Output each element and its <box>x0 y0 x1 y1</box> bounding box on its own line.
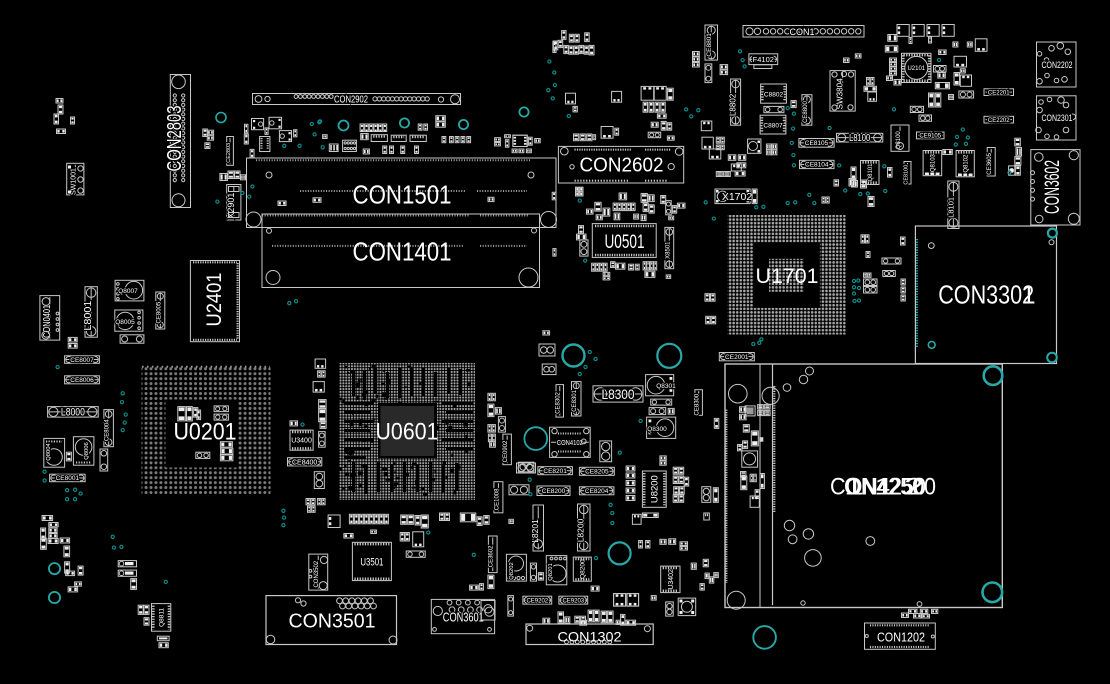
svg-text:C8802: C8802 <box>764 92 784 99</box>
svg-text:Q8007: Q8007 <box>118 288 138 295</box>
svg-text:U3402: U3402 <box>668 569 675 590</box>
svg-text:U0601: U0601 <box>376 419 439 446</box>
svg-text:Q8006: Q8006 <box>84 442 90 459</box>
svg-text:CON2602: CON2602 <box>580 155 664 177</box>
svg-text:L8101: L8101 <box>946 197 955 218</box>
svg-text:CE8100: CE8100 <box>904 165 910 185</box>
svg-text:CE0902: CE0902 <box>503 440 509 462</box>
svg-text:CON1202: CON1202 <box>877 630 925 645</box>
svg-text:CON0401: CON0401 <box>42 305 53 338</box>
svg-text:CE9203: CE9203 <box>562 598 584 604</box>
svg-text:CE8800: CE8800 <box>803 101 809 123</box>
svg-text:L8300: L8300 <box>602 386 635 402</box>
svg-text:1 1 2: 1 1 2 <box>844 474 924 501</box>
svg-text:Q8301: Q8301 <box>656 383 676 390</box>
svg-text:U1701: U1701 <box>756 264 819 288</box>
svg-text:CON1: CON1 <box>790 27 815 38</box>
svg-text:Q8202: Q8202 <box>509 562 515 579</box>
svg-text:Q8004: Q8004 <box>46 443 52 461</box>
svg-text:CON1401: CON1401 <box>353 237 452 267</box>
svg-text:CE3602: CE3602 <box>489 545 495 567</box>
svg-text:1: 1 <box>1021 282 1035 310</box>
svg-text:CON3601: CON3601 <box>443 609 484 624</box>
svg-text:SW1001: SW1001 <box>70 168 77 195</box>
svg-text:CE8201: CE8201 <box>543 468 567 475</box>
svg-text:U2101: U2101 <box>907 66 925 72</box>
svg-text:L8001: L8001 <box>82 300 94 330</box>
svg-text:CON1501: CON1501 <box>353 180 452 210</box>
svg-text:CE8302: CE8302 <box>556 391 562 413</box>
svg-text:CE2202: CE2202 <box>988 118 1010 124</box>
svg-text:CON2902: CON2902 <box>334 94 368 106</box>
svg-text:CE2001: CE2001 <box>725 354 749 361</box>
svg-text:Q8103: Q8103 <box>931 153 937 172</box>
svg-text:Q8005: Q8005 <box>115 319 135 326</box>
svg-text:U2401: U2401 <box>203 273 226 327</box>
svg-text:CON3501: CON3501 <box>289 611 376 633</box>
svg-text:X1702: X1702 <box>722 191 753 203</box>
svg-text:CON2803: CON2803 <box>164 106 186 172</box>
svg-text:L8100: L8100 <box>849 133 870 144</box>
svg-text:C8807: C8807 <box>763 123 783 130</box>
svg-text:CE8006: CE8006 <box>70 377 94 384</box>
svg-text:CON3602: CON3602 <box>1041 160 1064 214</box>
svg-text:Q8101: Q8101 <box>868 163 874 182</box>
svg-text:L8802: L8802 <box>729 93 738 116</box>
svg-text:CE8301: CE8301 <box>572 389 578 411</box>
svg-text:Q8811: Q8811 <box>158 608 165 627</box>
svg-text:CON1302: CON1302 <box>558 629 622 645</box>
svg-text:Q8201: Q8201 <box>548 563 554 580</box>
svg-text:Q8102: Q8102 <box>963 154 969 173</box>
svg-text:Q8200: Q8200 <box>580 559 587 579</box>
svg-text:CON3302: CON3302 <box>938 282 1034 310</box>
svg-text:X2901: X2901 <box>226 193 237 219</box>
svg-text:U8200: U8200 <box>650 475 661 503</box>
svg-text:CE3605: CE3605 <box>987 152 993 174</box>
svg-text:CON2301: CON2301 <box>1042 113 1073 124</box>
svg-text:CON2202: CON2202 <box>1042 60 1073 71</box>
svg-text:U3501: U3501 <box>360 556 383 568</box>
svg-text:SW3804: SW3804 <box>835 78 845 109</box>
svg-text:CE2803: CE2803 <box>226 143 232 163</box>
svg-text:CE8007: CE8007 <box>70 357 94 364</box>
svg-text:X8501: X8501 <box>665 241 671 259</box>
svg-text:CE9105: CE9105 <box>919 134 941 140</box>
svg-text:L8200: L8200 <box>576 518 586 542</box>
svg-text:CE8004: CE8004 <box>105 419 111 441</box>
svg-text:CE8001: CE8001 <box>56 475 80 482</box>
svg-text:U3400: U3400 <box>291 438 312 445</box>
svg-text:L8201: L8201 <box>530 519 540 543</box>
svg-text:CE8801: CE8801 <box>706 33 713 57</box>
svg-text:F4102: F4102 <box>753 55 774 64</box>
svg-text:CE2201: CE2201 <box>988 90 1010 96</box>
svg-text:CE1008: CE1008 <box>494 488 500 510</box>
svg-text:CE8005: CE8005 <box>156 301 162 323</box>
svg-text:CE8400: CE8400 <box>292 459 317 466</box>
svg-text:CE8104: CE8104 <box>805 162 829 169</box>
svg-text:CON4102: CON4102 <box>557 440 583 447</box>
svg-text:CE8200: CE8200 <box>542 488 566 495</box>
svg-text:CE8204: CE8204 <box>585 488 609 495</box>
svg-text:CE8205: CE8205 <box>585 469 609 476</box>
svg-text:CE9202: CE9202 <box>526 598 548 604</box>
svg-text:CE8300: CE8300 <box>695 393 701 415</box>
svg-text:Q8300: Q8300 <box>647 426 667 433</box>
svg-text:CE8105: CE8105 <box>805 140 829 147</box>
svg-text:L8000: L8000 <box>61 407 85 419</box>
svg-text:U0501: U0501 <box>605 232 645 253</box>
